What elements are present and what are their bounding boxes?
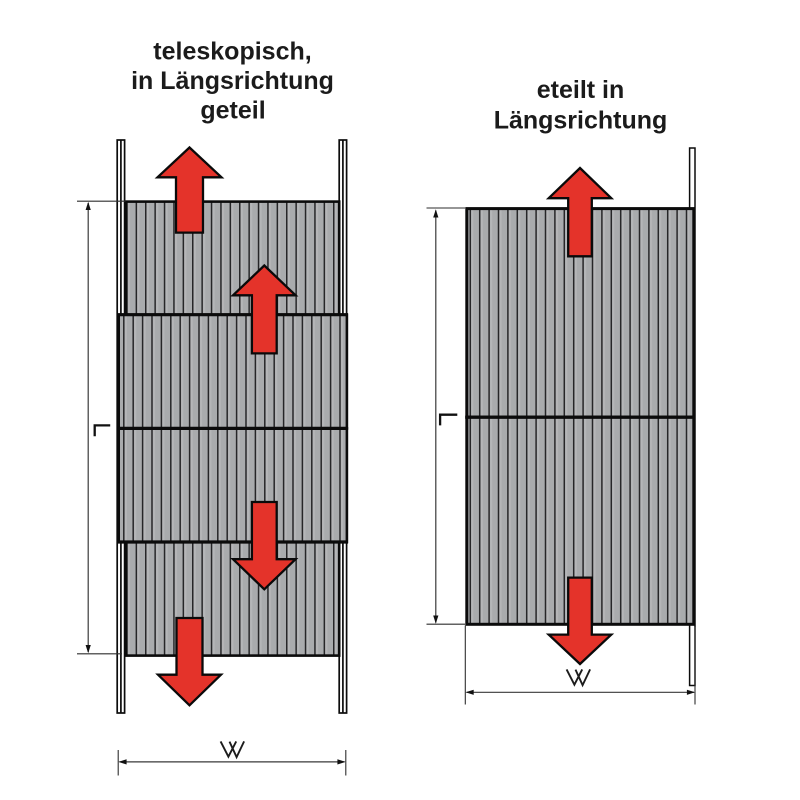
svg-text:geteil: geteil	[200, 97, 265, 125]
svg-text:Längsrichtung: Längsrichtung	[494, 107, 668, 135]
svg-text:in Längsrichtung: in Längsrichtung	[131, 67, 334, 95]
svg-text:eteilt in: eteilt in	[537, 76, 625, 104]
svg-text:teleskopisch,: teleskopisch,	[153, 38, 311, 66]
